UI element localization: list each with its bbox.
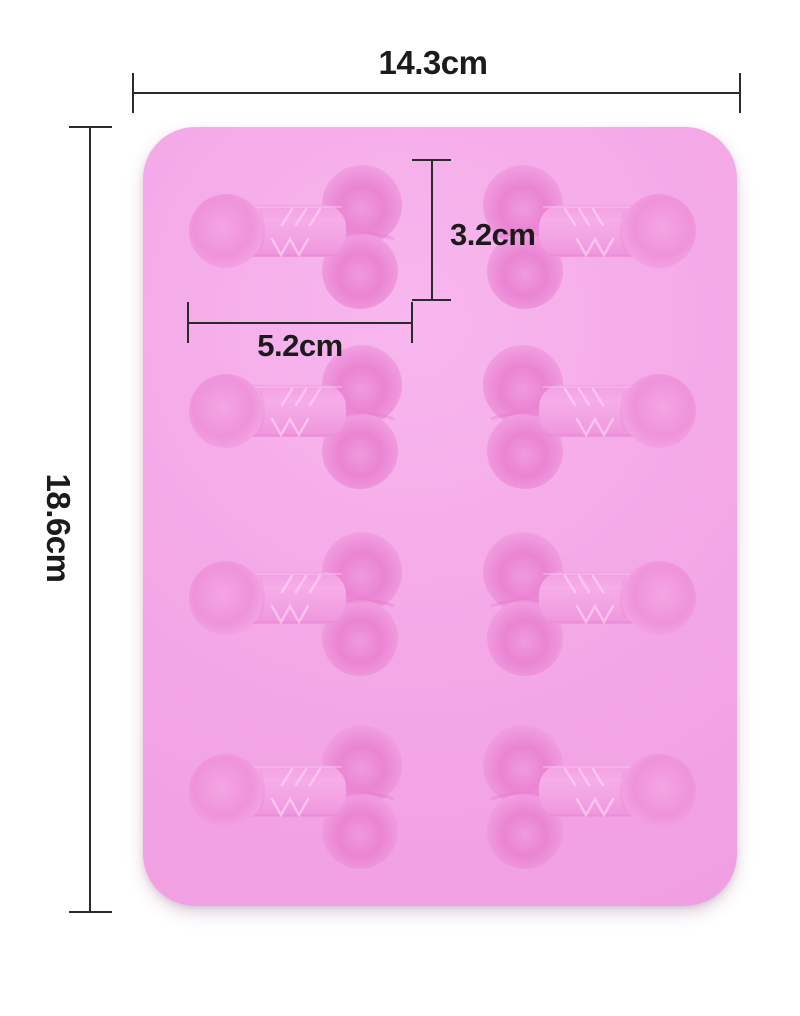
width-dimension-tick-left xyxy=(132,73,134,113)
mold-cavity xyxy=(483,345,696,489)
cavity-length-tick-left xyxy=(187,302,189,343)
mold-cavity xyxy=(189,532,402,676)
height-dimension-label: 18.6cm xyxy=(38,428,78,628)
cavity-length-label: 5.2cm xyxy=(200,330,400,362)
height-dimension-line xyxy=(89,127,91,913)
cavity-length-tick-right xyxy=(411,302,413,343)
mold-cavity xyxy=(189,345,402,489)
mold-cavity xyxy=(189,165,402,309)
mold-cavities xyxy=(143,127,737,906)
height-dimension-tick-bottom xyxy=(69,911,112,913)
cavity-height-tick-bottom xyxy=(412,299,451,301)
cavity-height-label: 3.2cm xyxy=(450,219,535,251)
width-dimension-line xyxy=(133,92,740,94)
height-dimension-tick-top xyxy=(69,126,112,128)
cavity-height-dimension-line xyxy=(431,160,433,300)
mold-cavity xyxy=(189,725,402,869)
cavity-height-tick-top xyxy=(412,159,451,161)
width-dimension-tick-right xyxy=(739,73,741,113)
mold-cavity xyxy=(483,725,696,869)
width-dimension-label: 14.3cm xyxy=(333,46,533,80)
dimension-diagram: 14.3cm 18.6cm 3.2cm 5.2cm xyxy=(0,0,800,1016)
cavity-length-dimension-line xyxy=(188,322,412,324)
mold-cavity xyxy=(483,532,696,676)
